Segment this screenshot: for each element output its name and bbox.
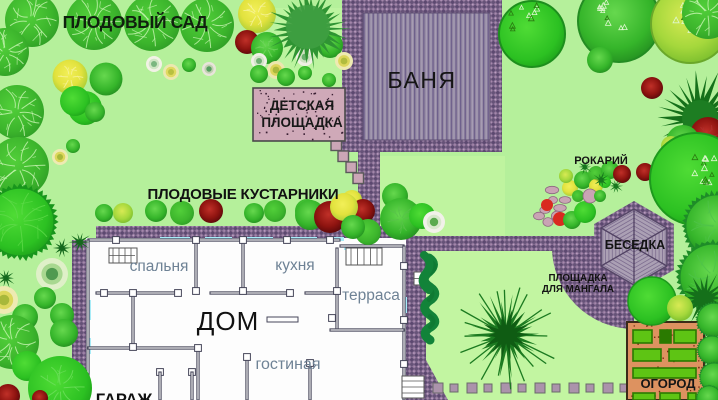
- svg-text:ОГОРОД: ОГОРОД: [640, 376, 696, 391]
- svg-text:БАНЯ: БАНЯ: [387, 67, 456, 93]
- svg-text:ПЛОЩАДКА: ПЛОЩАДКА: [261, 115, 343, 130]
- svg-text:РОКАРИЙ: РОКАРИЙ: [574, 154, 628, 167]
- svg-text:БЕСЕДКА: БЕСЕДКА: [605, 238, 665, 252]
- svg-text:ГАРАЖ: ГАРАЖ: [96, 391, 153, 400]
- svg-text:ПЛОДОВЫЕ КУСТАРНИКИ: ПЛОДОВЫЕ КУСТАРНИКИ: [148, 186, 339, 203]
- svg-text:ПЛОДОВЫЙ САД: ПЛОДОВЫЙ САД: [63, 11, 209, 32]
- svg-text:ДЛЯ МАНГАЛА: ДЛЯ МАНГАЛА: [542, 284, 614, 295]
- svg-text:ДОМ: ДОМ: [197, 306, 260, 336]
- svg-text:терраса: терраса: [342, 287, 400, 304]
- svg-text:гостиная: гостиная: [255, 356, 320, 373]
- svg-text:спальня: спальня: [130, 258, 189, 275]
- svg-text:кухня: кухня: [275, 257, 314, 274]
- svg-text:ПЛОЩАДКА: ПЛОЩАДКА: [549, 273, 608, 284]
- svg-text:ДЕТСКАЯ: ДЕТСКАЯ: [270, 98, 334, 113]
